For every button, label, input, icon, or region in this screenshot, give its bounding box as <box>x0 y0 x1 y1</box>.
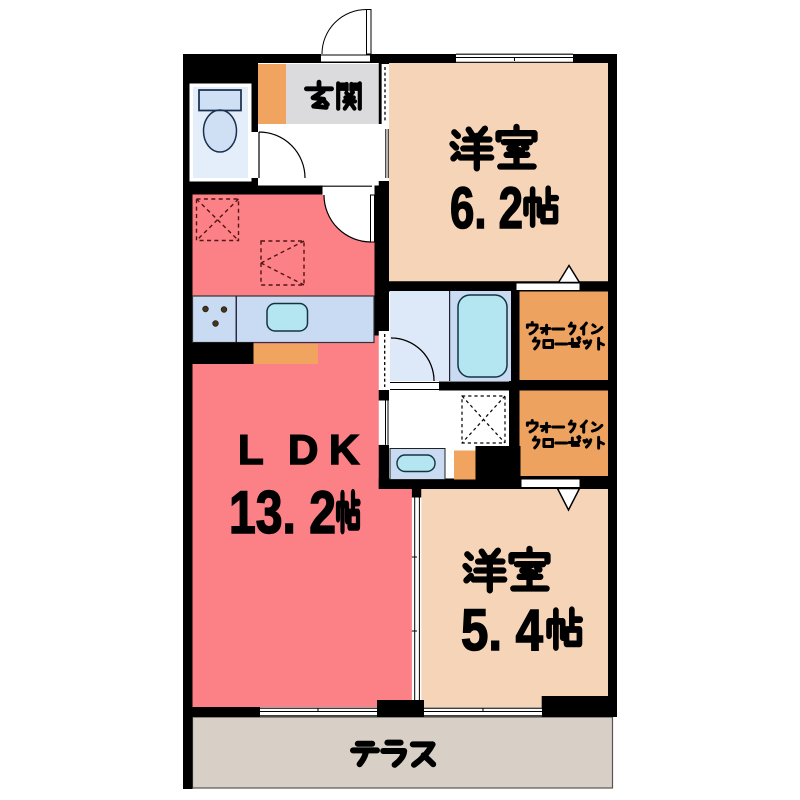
svg-text:13. 2: 13. 2 <box>229 479 336 546</box>
svg-text:6. 2: 6. 2 <box>450 176 523 241</box>
svg-text:L: L <box>238 426 264 473</box>
svg-text:D: D <box>288 426 318 473</box>
svg-text:5. 4: 5. 4 <box>461 598 543 663</box>
svg-text:K: K <box>329 426 359 473</box>
